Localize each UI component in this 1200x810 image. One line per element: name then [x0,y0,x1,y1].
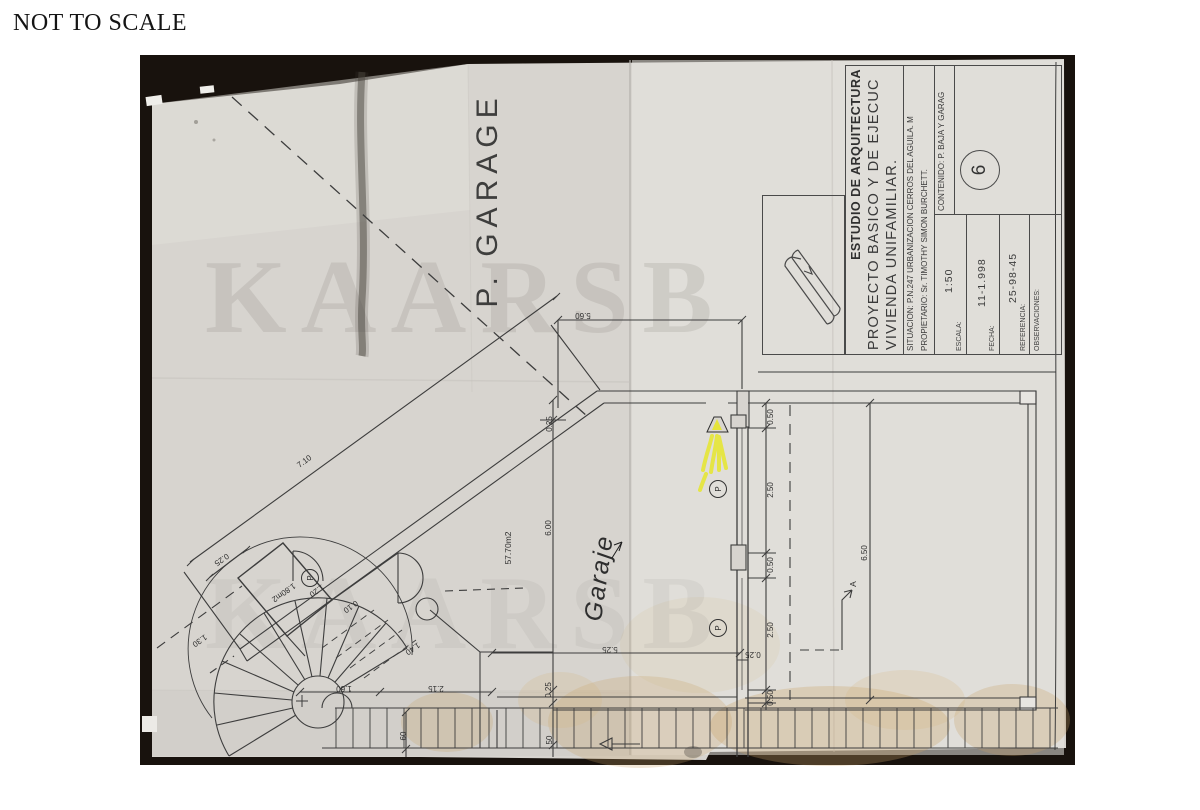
escala-label: ESCALA: [956,321,963,351]
referencia-label: REFERENCIA: [1020,304,1027,351]
project-title-line1: PROYECTO BASICO Y DE EJECUC [866,67,882,350]
section-marker-a: A [848,581,858,587]
studio-logo-icon [763,197,843,354]
logo-box [762,195,845,355]
situacion-value: P.N.247 URBANIZACION CERROS DEL AGUILA. … [906,116,915,303]
screenshot: { "page": { "note": "NOT TO SCALE", "wat… [0,0,1200,810]
dim-label: 1.60 [336,684,352,693]
observaciones-row: OBSERVACIONES: [1030,215,1062,355]
propietario-row: PROPIETARIO: Sr. TIMOTHY SIMON BURCHETT. [920,67,929,351]
escala-row: ESCALA: 1:50 [934,215,967,355]
dim-label: 0.25 [745,650,761,659]
title-block-inner: ESTUDIO DE ARQUITECTURA PROYECTO BASICO … [762,62,1062,372]
dim-label: 0.50 [766,409,775,425]
watermark-text: KAARSB [205,238,727,355]
referencia-value: 25-98-45 [1007,253,1019,303]
escala-value: 1:50 [943,269,955,293]
column-marker-label: P [714,625,723,630]
fecha-row: FECHA: 11-1.998 [967,215,1000,355]
contenido-row: CONTENIDO: P. BAJA Y GARAG [937,65,946,211]
contenido-value: P. BAJA Y GARAG [937,92,946,159]
propietario-value: Sr. TIMOTHY SIMON BURCHETT. [920,169,929,292]
garage-area-label: 57.70m2 [503,531,513,564]
column-marker-label: P [714,486,723,491]
dim-label: 50 [545,735,554,744]
dim-label: 6.00 [544,520,553,536]
dim-label: 2.50 [766,622,775,638]
title-block: ESTUDIO DE ARQUITECTURA PROYECTO BASICO … [762,62,1062,372]
dim-label: 0.50 [766,690,775,706]
studio-name: ESTUDIO DE ARQUITECTURA [849,69,863,353]
observaciones-label: OBSERVACIONES: [1034,289,1041,351]
dim-label: 2.15 [428,684,444,693]
fecha-value: 11-1.998 [976,258,988,307]
sheet-number-badge: 6 [960,150,1000,190]
dim-label: 5.25 [602,645,618,654]
referencia-row: REFERENCIA: 25-98-45 [1000,215,1030,355]
dim-label: 60 [399,731,408,740]
dim-label: 5.60 [575,311,591,320]
project-title-line2: VIVIENDA UNIFAMILIAR. [884,67,900,350]
dim-label: 2.50 [766,482,775,498]
fecha-label: FECHA: [989,325,996,351]
contenido-label: CONTENIDO: [937,161,946,211]
dim-label: 6.50 [860,545,869,561]
dim-label: 0.50 [766,557,775,573]
dim-label: 0.25 [545,416,554,432]
column-marker-label: P [306,575,315,580]
situacion-label: SITUACION: [906,305,915,351]
situacion-row: SITUACION: P.N.247 URBANIZACION CERROS D… [906,67,915,351]
divider [903,65,904,355]
room-title-p-garage: P. GARAGE [471,92,504,307]
divider [954,65,955,215]
dim-label: 0.25 [544,682,553,698]
propietario-label: PROPIETARIO: [920,295,929,351]
